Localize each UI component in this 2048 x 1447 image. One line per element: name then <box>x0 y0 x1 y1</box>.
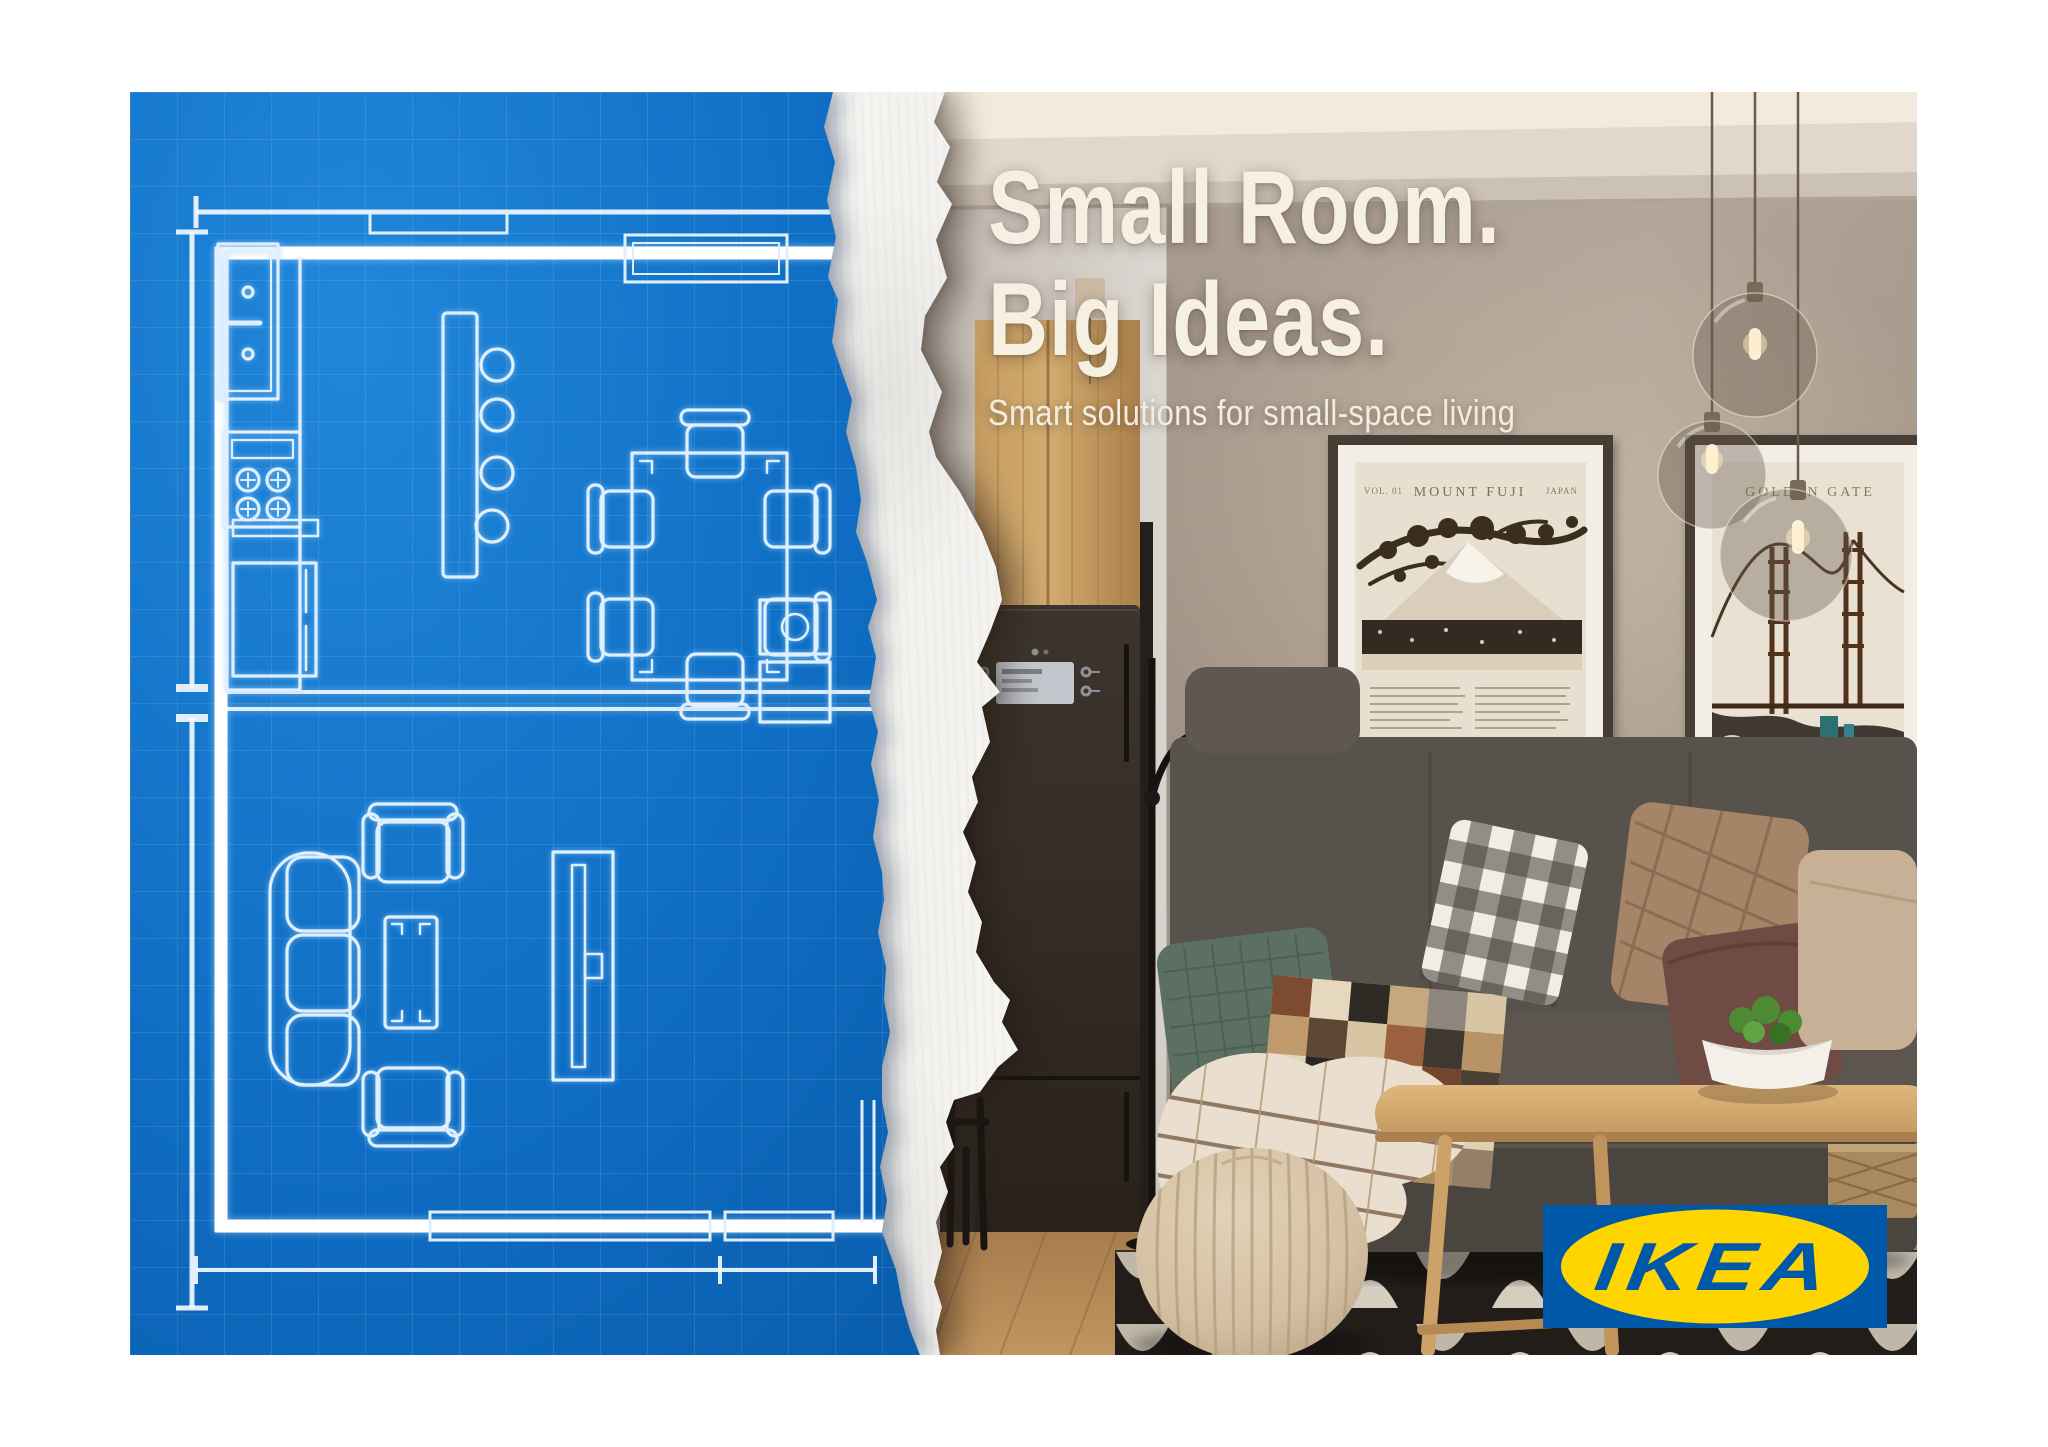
ikea-logo: IKEA <box>1543 1205 1887 1328</box>
subtitle: Smart solutions for small-space living <box>988 392 1539 434</box>
headline-line-1: Small Room. <box>988 152 1501 264</box>
ikea-logo-text: IKEA <box>1591 1229 1840 1305</box>
poster-page: VOL. 01 MOUNT FUJI JAPAN <box>0 0 2048 1447</box>
headline-line-2: Big Ideas. <box>988 264 1501 376</box>
blueprint-panel <box>130 92 920 1355</box>
poster-card: VOL. 01 MOUNT FUJI JAPAN <box>130 92 1917 1355</box>
blueprint-floorplan <box>130 92 920 1355</box>
headline-block: Small Room. Big Ideas. Smart solutions f… <box>988 152 1629 434</box>
